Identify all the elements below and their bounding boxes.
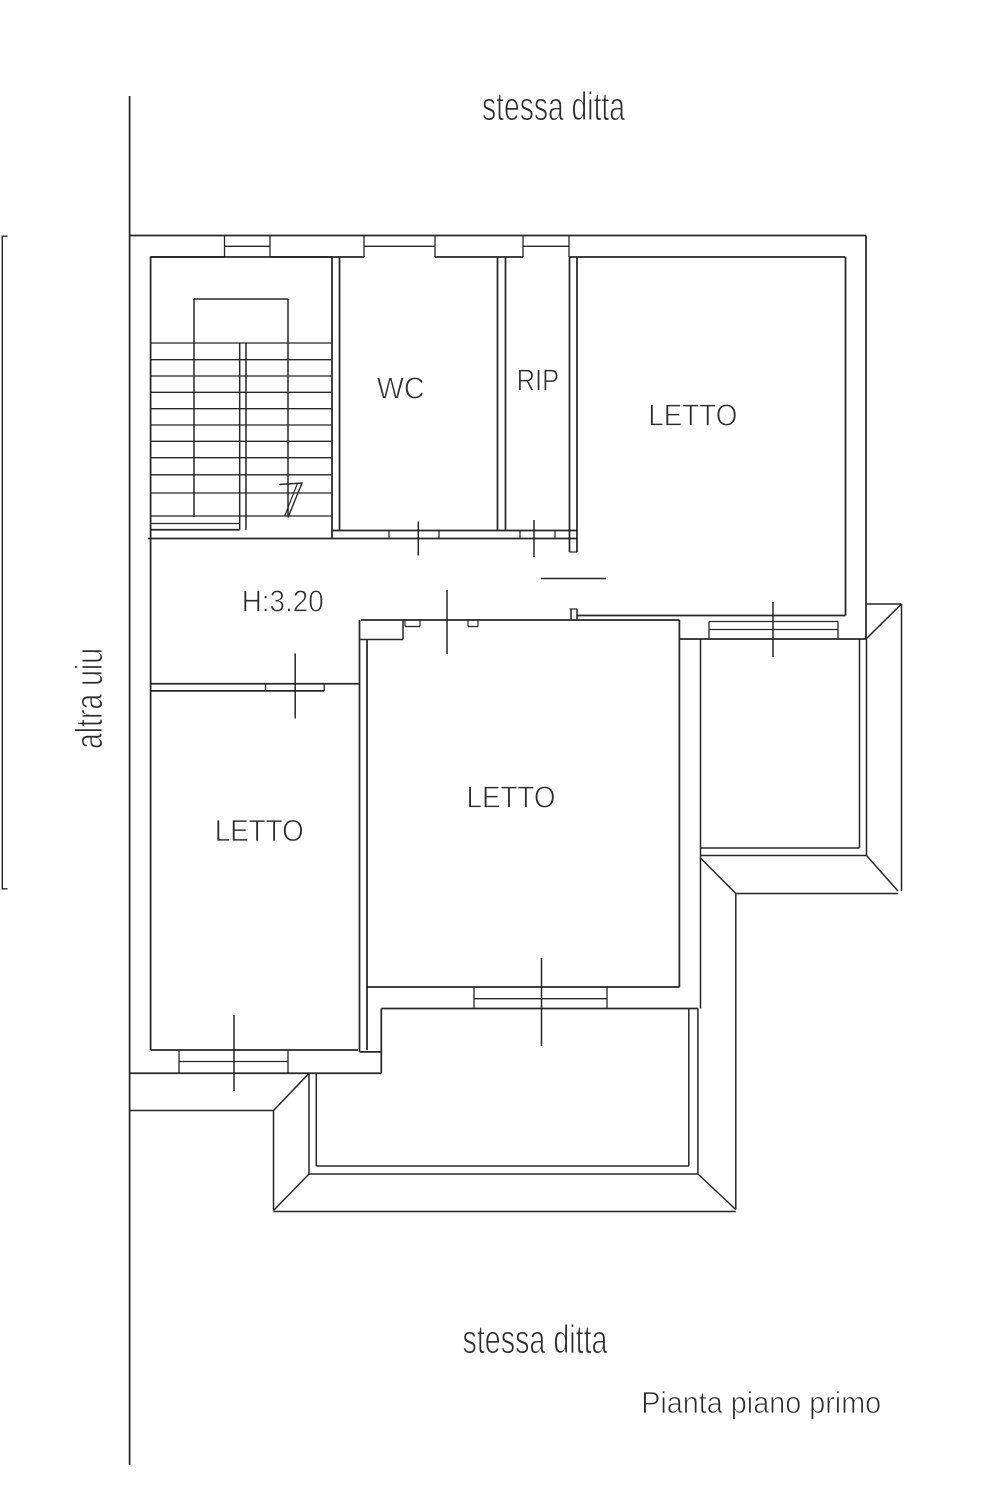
- svg-text:LETTO: LETTO: [467, 780, 556, 815]
- svg-text:H:3.20: H:3.20: [242, 584, 324, 619]
- svg-text:RIP: RIP: [517, 363, 560, 398]
- svg-text:Pianta piano primo: Pianta piano primo: [641, 1385, 881, 1420]
- svg-text:LETTO: LETTO: [215, 813, 304, 848]
- svg-text:WC: WC: [377, 370, 425, 405]
- svg-text:altra uiu: altra uiu: [69, 648, 111, 749]
- svg-text:stessa ditta: stessa ditta: [463, 1318, 609, 1362]
- svg-text:LETTO: LETTO: [648, 397, 737, 432]
- svg-text:stessa ditta: stessa ditta: [482, 85, 626, 129]
